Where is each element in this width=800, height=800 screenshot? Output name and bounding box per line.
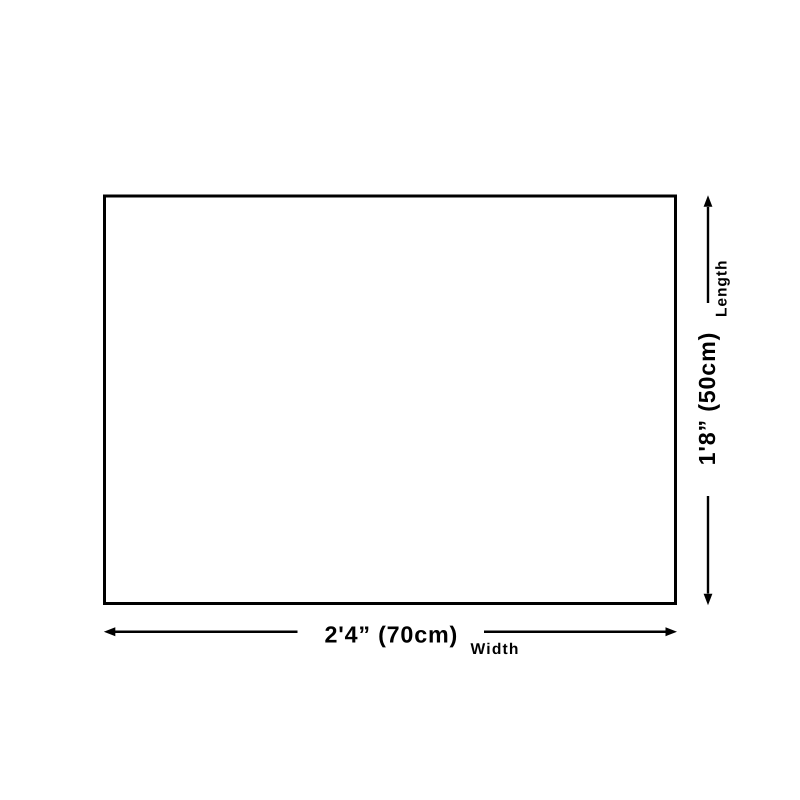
svg-text:1'8” (50cm): 1'8” (50cm) (694, 332, 720, 465)
svg-text:Width: Width (471, 641, 520, 658)
svg-text:Length: Length (714, 260, 731, 317)
svg-text:2'4” (70cm): 2'4” (70cm) (325, 622, 458, 648)
